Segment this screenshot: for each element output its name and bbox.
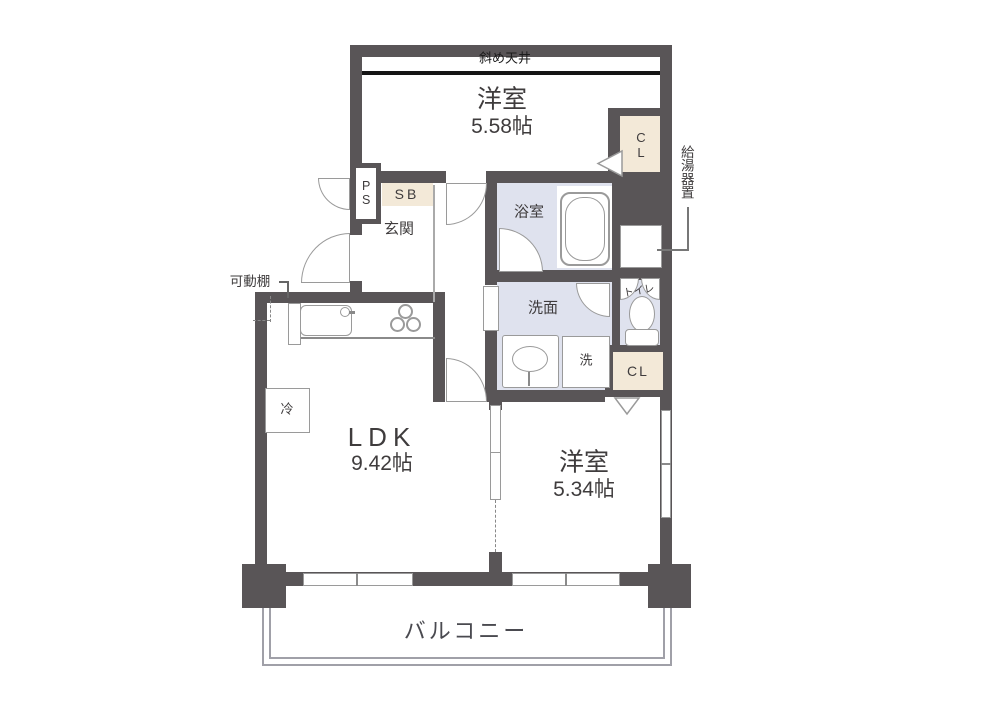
porch-door-arc [318, 178, 350, 210]
water-heater-pointer [657, 249, 688, 251]
toilet-tank [625, 329, 659, 346]
bedroom-right-size: 5.34帖 [553, 478, 615, 502]
shelf-label-pointer [287, 281, 289, 298]
pillar [242, 564, 286, 608]
water-heater-label: 給湯器置 [678, 145, 694, 199]
closet-bottom-door-triangle [614, 397, 640, 415]
water-heater-box [620, 225, 662, 268]
wall [485, 183, 497, 285]
movable-shelf-range [253, 320, 270, 321]
bedroom-top-size: 5.58帖 [471, 115, 533, 139]
water-heater-pointer [687, 207, 689, 251]
balcony-label: バルコニー [404, 618, 529, 643]
closet-top-door-triangle [597, 150, 623, 177]
slanted-ceiling-label: 斜め天井 [479, 52, 531, 67]
floor-plan: 斜め天井 洋室 5.58帖 CL 給湯器置 PS SB 玄関 浴室 洗面 洗 ト… [0, 0, 1000, 716]
wall [255, 292, 445, 303]
stove-burner [406, 317, 421, 332]
movable-shelf-range [270, 296, 271, 322]
washroom-label: 洗面 [528, 299, 558, 316]
wash-basin [512, 346, 548, 372]
sliding-door-panel [490, 452, 501, 500]
kitchen-faucet-spout [349, 311, 355, 314]
entrance-label: 玄関 [384, 220, 414, 237]
bedroom-top-name: 洋室 [477, 86, 527, 115]
entrance-doorway [348, 235, 364, 281]
movable-shelf-label: 可動棚 [230, 274, 271, 290]
ldk-name: LDK [348, 423, 417, 453]
sliding-door-track [495, 500, 496, 552]
stove-burner [390, 317, 405, 332]
wall [612, 280, 620, 345]
refrigerator-label: 冷 [280, 403, 293, 418]
closet-top-label: CL [633, 130, 648, 160]
washroom-sliding-door [483, 286, 499, 331]
entrance-step-line [433, 185, 435, 302]
window [303, 573, 413, 586]
window-mullion [661, 463, 671, 465]
pipe-space-label: PS [359, 179, 373, 207]
ldk-door-arc [446, 358, 487, 402]
slanted-ceiling-line [362, 71, 660, 75]
sliding-door-panel [490, 405, 501, 453]
bedroom-right-name: 洋室 [559, 449, 609, 478]
bedroom-top-door-arc [446, 183, 487, 225]
window-mullion [565, 573, 567, 586]
window-mullion [356, 573, 358, 586]
wall [605, 345, 663, 352]
laundry-label: 洗 [579, 354, 592, 369]
wall [486, 171, 612, 183]
toilet-bowl [629, 296, 655, 332]
wall [485, 390, 605, 402]
bathroom-label: 浴室 [514, 203, 544, 220]
wall [433, 303, 445, 402]
basin-faucet [528, 372, 530, 386]
entrance-door-arc [301, 233, 350, 283]
ldk-size: 9.42帖 [351, 452, 413, 476]
bathtub-inner [565, 197, 605, 261]
movable-shelf [288, 303, 301, 345]
shoe-box-label: SB [395, 186, 420, 202]
pillar [648, 564, 691, 608]
wall [613, 390, 663, 397]
closet-bottom-label: CL [627, 363, 649, 379]
kitchen-counter-edge [288, 337, 435, 339]
